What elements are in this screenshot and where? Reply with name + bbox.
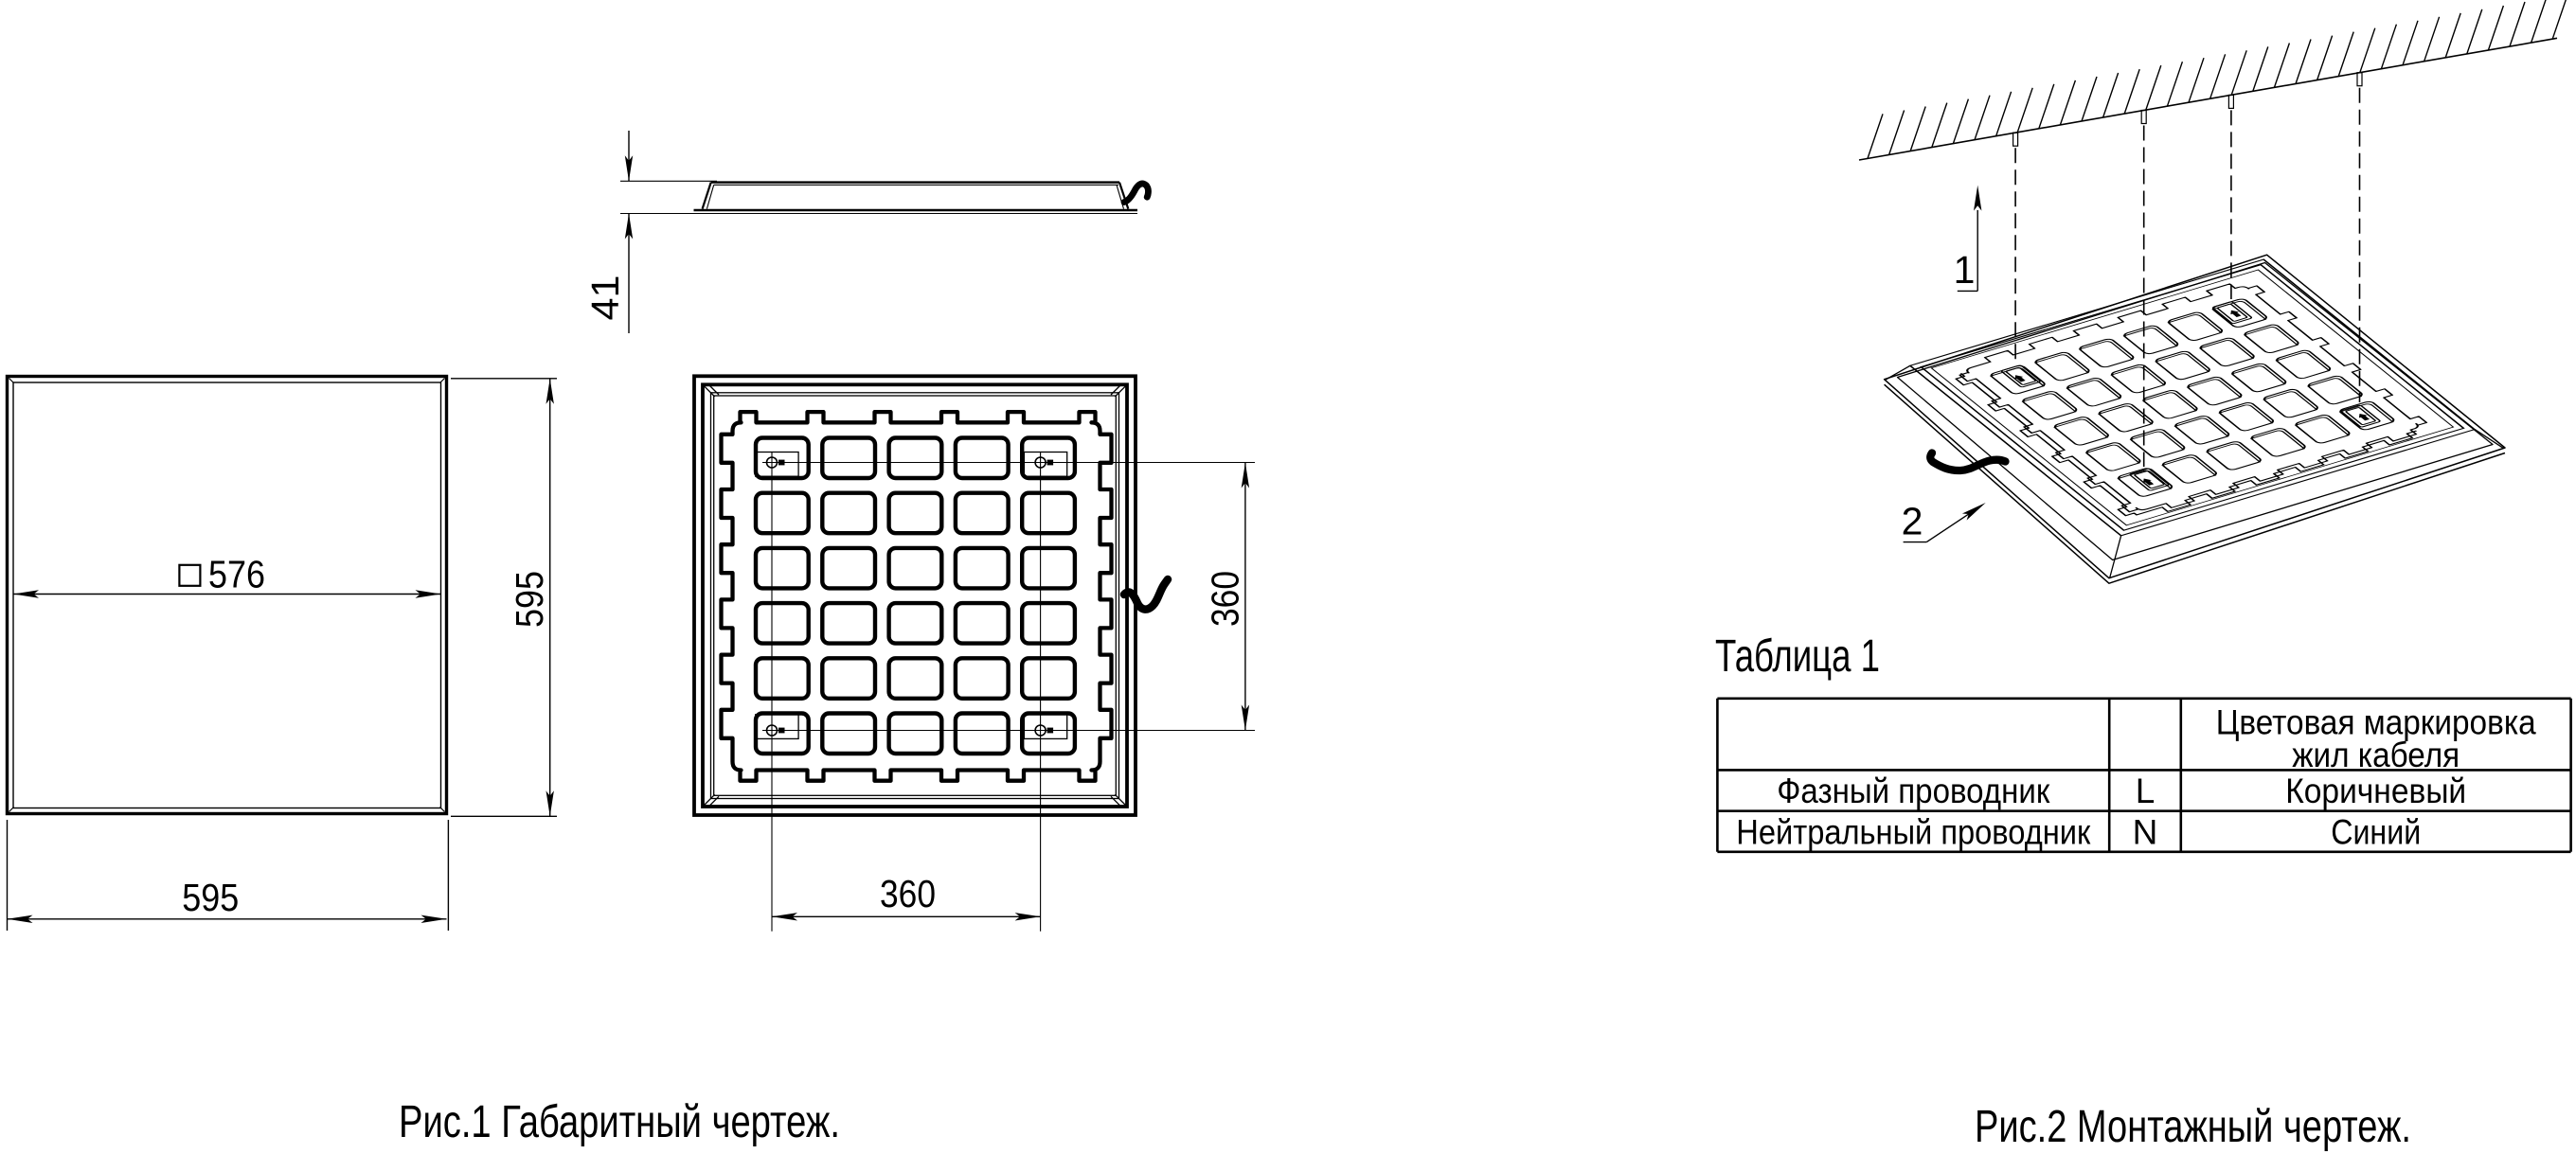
svg-text:41: 41 — [583, 275, 627, 321]
svg-text:Фазный проводник: Фазный проводник — [1777, 772, 2050, 810]
svg-text:Нейтральный проводник: Нейтральный проводник — [1736, 813, 2091, 852]
svg-text:360: 360 — [880, 872, 936, 915]
svg-text:Рис.1 Габаритный чертеж.: Рис.1 Габаритный чертеж. — [399, 1096, 840, 1147]
svg-text:Синий: Синий — [2331, 813, 2421, 852]
svg-text:595: 595 — [508, 571, 551, 628]
svg-text:L: L — [2136, 772, 2156, 810]
svg-text:1: 1 — [1954, 248, 1976, 292]
svg-text:360: 360 — [1203, 571, 1246, 627]
svg-text:N: N — [2133, 813, 2158, 852]
svg-text:Коричневый: Коричневый — [2285, 772, 2466, 810]
svg-text:595: 595 — [182, 876, 239, 919]
svg-text:2: 2 — [1902, 499, 1923, 542]
svg-text:Таблица 1: Таблица 1 — [1715, 630, 1880, 682]
svg-text:Рис.2 Монтажный чертеж.: Рис.2 Монтажный чертеж. — [1975, 1101, 2411, 1152]
svg-text:жил кабеля: жил кабеля — [2292, 736, 2460, 774]
svg-text:576: 576 — [208, 553, 265, 596]
